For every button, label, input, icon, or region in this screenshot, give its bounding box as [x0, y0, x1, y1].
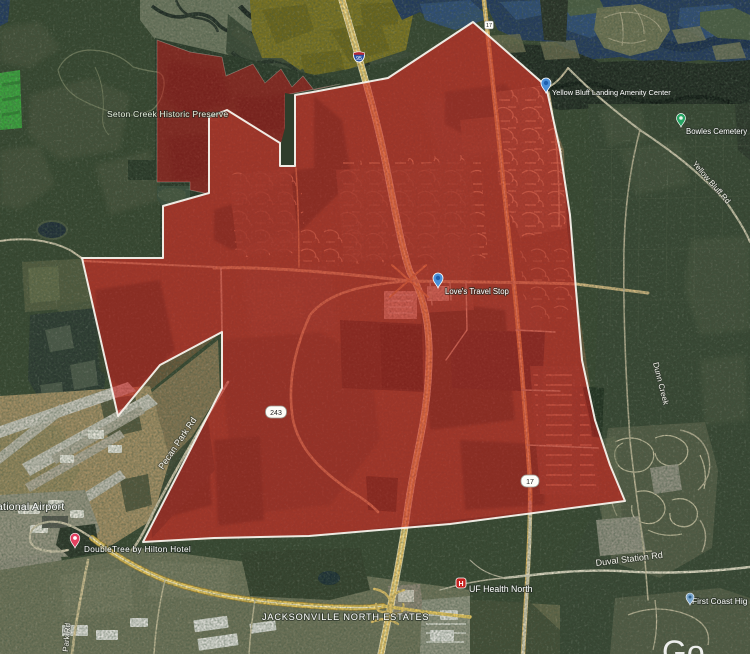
svg-text:243: 243 — [270, 410, 282, 417]
svg-text:17: 17 — [526, 479, 534, 486]
svg-text:UF Health North: UF Health North — [469, 584, 533, 594]
svg-text:Seton Creek Historic Preserve: Seton Creek Historic Preserve — [107, 109, 228, 119]
svg-text:Yellow Bluff Landing Amenity C: Yellow Bluff Landing Amenity Center — [552, 88, 671, 97]
svg-text:JACKSONVILLE NORTH ESTATES: JACKSONVILLE NORTH ESTATES — [262, 612, 429, 622]
svg-text:DoubleTree by Hilton Hotel: DoubleTree by Hilton Hotel — [84, 545, 191, 554]
svg-text:Bowles Cemetery: Bowles Cemetery — [686, 127, 747, 136]
svg-text:95: 95 — [356, 56, 362, 62]
svg-text:17: 17 — [486, 23, 492, 29]
svg-text:national Airport: national Airport — [0, 502, 65, 513]
svg-text:First Coast Hig: First Coast Hig — [692, 596, 748, 606]
svg-text:Go: Go — [662, 634, 705, 654]
svg-text:Love's Travel Stop: Love's Travel Stop — [445, 287, 510, 296]
svg-text:H: H — [458, 581, 463, 588]
